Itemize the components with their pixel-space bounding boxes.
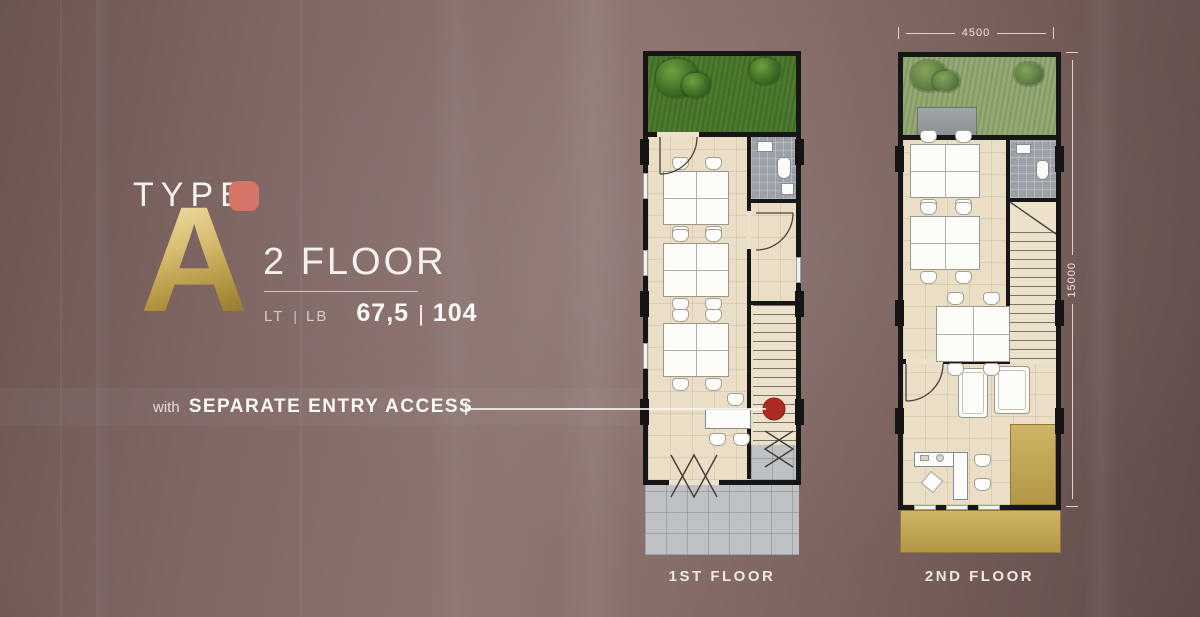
double-door-icon (671, 455, 717, 497)
first-floor-label: 1ST FLOOR (643, 568, 801, 585)
title-divider (264, 291, 418, 292)
dimension-line (906, 33, 955, 34)
background-streak (60, 0, 62, 617)
door-arc (906, 364, 943, 401)
floor-plan-first (643, 45, 801, 557)
callout-feature: SEPARATE ENTRY ACCESS (189, 396, 474, 418)
type-letter: A (140, 198, 248, 321)
callout-text: with SEPARATE ENTRY ACCESS (153, 396, 473, 418)
second-floor-label: 2ND FLOOR (898, 568, 1061, 585)
label-separator: | (293, 308, 297, 324)
height-dimension-value: 15000 (1066, 262, 1078, 298)
background-streak (1084, 0, 1118, 617)
value-separator: | (418, 301, 424, 327)
door-arc (660, 137, 697, 174)
floor-count: 2 FLOOR (263, 241, 447, 284)
floor-plan-second (898, 50, 1061, 555)
dimension-line (1072, 304, 1073, 499)
dimension-tick (898, 27, 899, 39)
dimension-line (1072, 60, 1073, 255)
lb-value: 104 (433, 299, 478, 328)
marketing-slide: TYPE A 2 FLOOR LT | LB 67,5 | 104 with S… (0, 0, 1200, 617)
dimension-line (997, 33, 1046, 34)
callout-prefix: with (153, 399, 180, 416)
stair-diagonal (1010, 202, 1056, 234)
lb-label: LB (306, 308, 328, 325)
lt-label: LT (264, 308, 284, 325)
entry-marker-dot (763, 398, 785, 420)
lt-value: 67,5 (356, 299, 409, 328)
dimension-tick (1053, 27, 1054, 39)
dimension-tick (1066, 52, 1078, 53)
width-dimension-value: 4500 (962, 27, 990, 39)
double-door-icon (765, 431, 793, 467)
dimension-tick (1066, 506, 1078, 507)
double-door-icon (671, 455, 717, 497)
width-dimension: 4500 (898, 26, 1054, 40)
background-streak (96, 0, 112, 617)
height-dimension: 15000 (1064, 52, 1080, 507)
plan-annotations (643, 45, 801, 557)
door-arc (756, 213, 793, 250)
background-streak (556, 0, 632, 617)
callout-leader-line (466, 408, 766, 410)
double-door-icon (765, 431, 793, 467)
area-row: LT | LB 67,5 | 104 (264, 299, 478, 328)
plan-annotations (898, 50, 1061, 555)
